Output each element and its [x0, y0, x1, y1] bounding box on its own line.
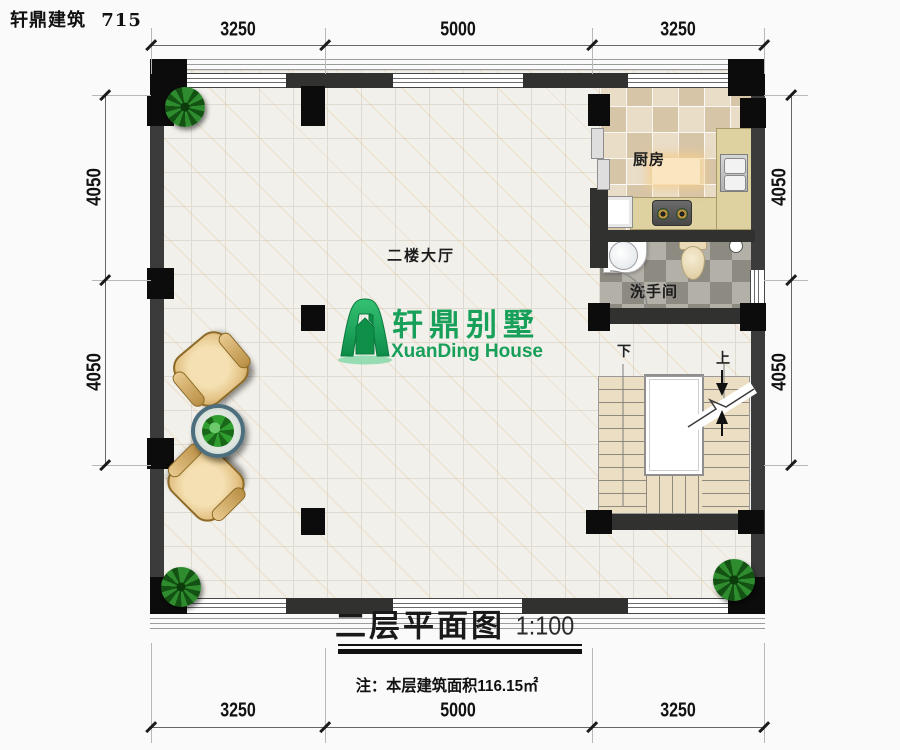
- dim-leader: [325, 28, 326, 74]
- plan-title: 二层平面图: [335, 601, 505, 646]
- column: [740, 98, 766, 128]
- column: [740, 303, 766, 331]
- window-bottom-1: [187, 598, 286, 614]
- sink-basin: [724, 158, 746, 174]
- window-top-1: [187, 73, 286, 88]
- round-table-icon: [191, 404, 245, 458]
- title-underline-thin: [338, 644, 582, 646]
- column: [588, 94, 610, 126]
- kitchen-label: 厨房: [633, 149, 665, 170]
- corner-column-tr: [728, 59, 765, 96]
- bathroom-label: 洗手间: [630, 281, 678, 302]
- dim-label-left-2: 4050: [84, 353, 107, 391]
- column: [301, 508, 325, 535]
- plant-icon: [161, 567, 201, 607]
- dim-leader: [325, 648, 326, 743]
- kitchen-door: [591, 128, 604, 159]
- plant-icon: [165, 87, 205, 127]
- floor-plan-canvas: 轩鼎建筑 715: [0, 0, 900, 750]
- sink-basin: [724, 175, 746, 191]
- dim-leader: [764, 280, 808, 281]
- wall-kitchen-bath: [590, 230, 755, 242]
- wall-below-stairs: [608, 514, 742, 530]
- dim-leader: [592, 648, 593, 743]
- dim-label-top-1: 3250: [220, 19, 256, 42]
- column: [147, 268, 174, 299]
- brand-name: 轩鼎建筑: [10, 10, 86, 31]
- wall-bath-stairs: [608, 308, 742, 324]
- roof-overhang-lines-top: [150, 59, 765, 71]
- dim-label-right-2: 4050: [769, 353, 792, 391]
- plant-icon: [713, 559, 755, 601]
- hall-label: 二楼大厅: [387, 245, 455, 266]
- dim-line-bottom: [151, 727, 764, 728]
- column: [301, 86, 325, 126]
- logo-text-en: XuanDing House: [391, 341, 543, 363]
- title-underline-thick: [338, 649, 582, 654]
- dim-label-bottom-2: 5000: [440, 700, 476, 723]
- stairs-up-label: 上: [716, 348, 730, 368]
- dim-label-bottom-3: 3250: [660, 700, 696, 723]
- area-note: 注：本层建筑面积116.15㎡: [356, 672, 538, 696]
- dim-label-right-1: 4050: [769, 168, 792, 206]
- stove-icon: [652, 200, 692, 226]
- column: [738, 510, 764, 534]
- drawing-header: 轩鼎建筑 715: [10, 6, 142, 32]
- stair-outline: [598, 376, 750, 514]
- dim-label-top-3: 3250: [660, 19, 696, 42]
- dim-leader: [592, 28, 593, 74]
- window-bottom-3: [628, 598, 728, 614]
- dim-line-top: [151, 45, 764, 46]
- dim-label-top-2: 5000: [440, 19, 476, 42]
- dim-leader: [764, 465, 808, 466]
- kitchen-sink-icon: [720, 154, 748, 192]
- column: [588, 303, 610, 331]
- model-number: 715: [101, 10, 142, 31]
- dim-label-bottom-1: 3250: [220, 700, 256, 723]
- dim-leader: [764, 28, 765, 74]
- dim-leader: [151, 28, 152, 74]
- wall-left: [150, 88, 164, 600]
- burner-icon: [676, 208, 688, 220]
- dim-leader: [764, 95, 808, 96]
- wall-top-seg2: [523, 73, 628, 88]
- plan-scale: 1:100: [516, 611, 575, 642]
- kitchen-door: [597, 159, 610, 190]
- column: [301, 305, 325, 331]
- column: [586, 510, 612, 534]
- wall-kitchen-left: [590, 188, 608, 268]
- window-top-2: [393, 73, 523, 88]
- stairs-down-label: 下: [617, 341, 631, 361]
- burner-icon: [657, 208, 669, 220]
- logo-house-icon: [336, 296, 394, 368]
- logo-text-cn: 轩鼎别墅: [392, 300, 540, 345]
- dim-label-left-1: 4050: [84, 168, 107, 206]
- window-top-kitchen: [628, 73, 728, 88]
- bathroom-sink-bowl: [609, 241, 638, 270]
- table-plant-icon: [202, 415, 234, 447]
